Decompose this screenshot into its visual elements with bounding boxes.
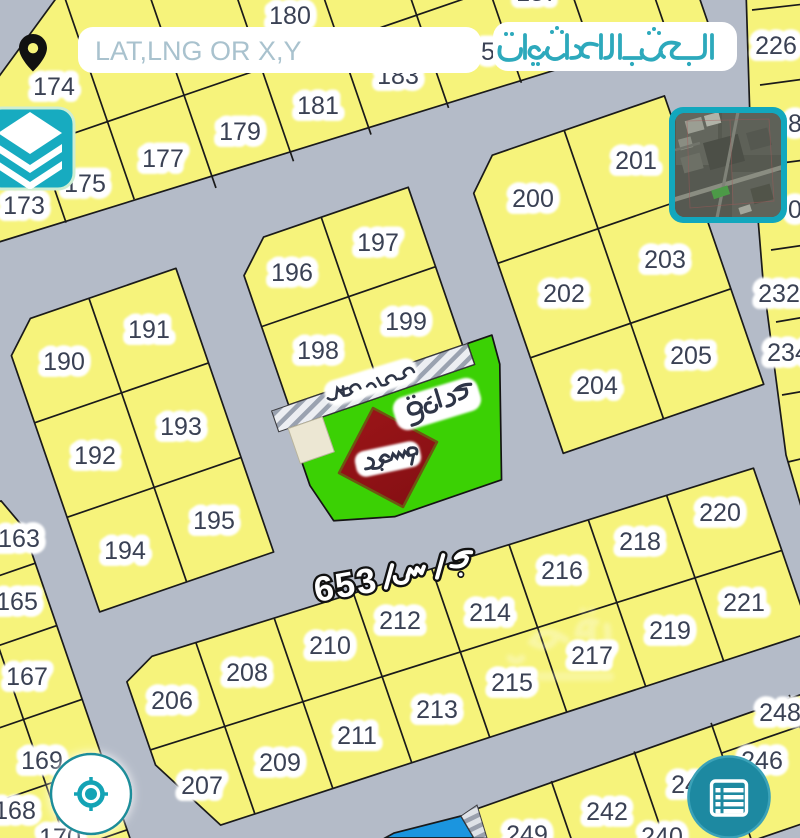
svg-text:193: 193: [160, 413, 202, 441]
svg-text:174: 174: [33, 73, 75, 101]
svg-text:208: 208: [226, 659, 268, 687]
svg-text:210: 210: [309, 632, 351, 660]
svg-text:207: 207: [181, 772, 223, 800]
svg-text:165: 165: [0, 588, 38, 616]
svg-text:180: 180: [269, 2, 311, 30]
svg-text:194: 194: [104, 537, 146, 565]
svg-text:219: 219: [649, 617, 691, 645]
svg-text:191: 191: [128, 316, 170, 344]
svg-text:198: 198: [297, 337, 339, 365]
svg-text:217: 217: [571, 642, 613, 670]
svg-text:8: 8: [788, 110, 800, 138]
svg-text:196: 196: [271, 259, 313, 287]
svg-text:214: 214: [469, 599, 511, 627]
svg-text:187: 187: [516, 0, 558, 7]
svg-text:177: 177: [142, 145, 184, 173]
svg-text:221: 221: [723, 589, 765, 617]
svg-text:226: 226: [755, 32, 797, 60]
svg-text:215: 215: [491, 669, 533, 697]
svg-text:195: 195: [193, 507, 235, 535]
svg-text:167: 167: [6, 663, 48, 691]
svg-text:204: 204: [576, 372, 618, 400]
svg-text:168: 168: [0, 797, 36, 825]
svg-text:213: 213: [416, 696, 458, 724]
svg-text:240: 240: [641, 823, 683, 838]
svg-text:209: 209: [259, 749, 301, 777]
svg-text:179: 179: [219, 118, 261, 146]
svg-text:206: 206: [151, 687, 193, 715]
svg-text:201: 201: [615, 147, 657, 175]
svg-text:232: 232: [758, 280, 800, 308]
svg-text:203: 203: [644, 246, 686, 274]
svg-text:212: 212: [379, 607, 421, 635]
svg-text:242: 242: [586, 798, 628, 826]
svg-text:LAT,LNG OR X,Y: LAT,LNG OR X,Y: [95, 36, 302, 66]
svg-text:200: 200: [512, 185, 554, 213]
svg-text:197: 197: [357, 229, 399, 257]
svg-text:0: 0: [788, 196, 800, 224]
svg-text:218: 218: [619, 528, 661, 556]
svg-text:211: 211: [337, 722, 377, 750]
svg-text:173: 173: [3, 192, 45, 220]
svg-text:202: 202: [543, 280, 585, 308]
svg-text:5: 5: [481, 38, 495, 66]
svg-text:220: 220: [699, 499, 741, 527]
svg-text:249: 249: [506, 821, 548, 838]
svg-text:190: 190: [43, 348, 85, 376]
svg-text:163: 163: [0, 525, 40, 553]
svg-text:216: 216: [541, 557, 583, 585]
svg-text:248: 248: [759, 699, 800, 727]
svg-text:192: 192: [74, 442, 116, 470]
svg-text:234: 234: [767, 339, 800, 367]
svg-text:205: 205: [670, 342, 712, 370]
svg-text:169: 169: [21, 747, 63, 775]
svg-text:199: 199: [385, 308, 427, 336]
svg-text:181: 181: [297, 92, 339, 120]
